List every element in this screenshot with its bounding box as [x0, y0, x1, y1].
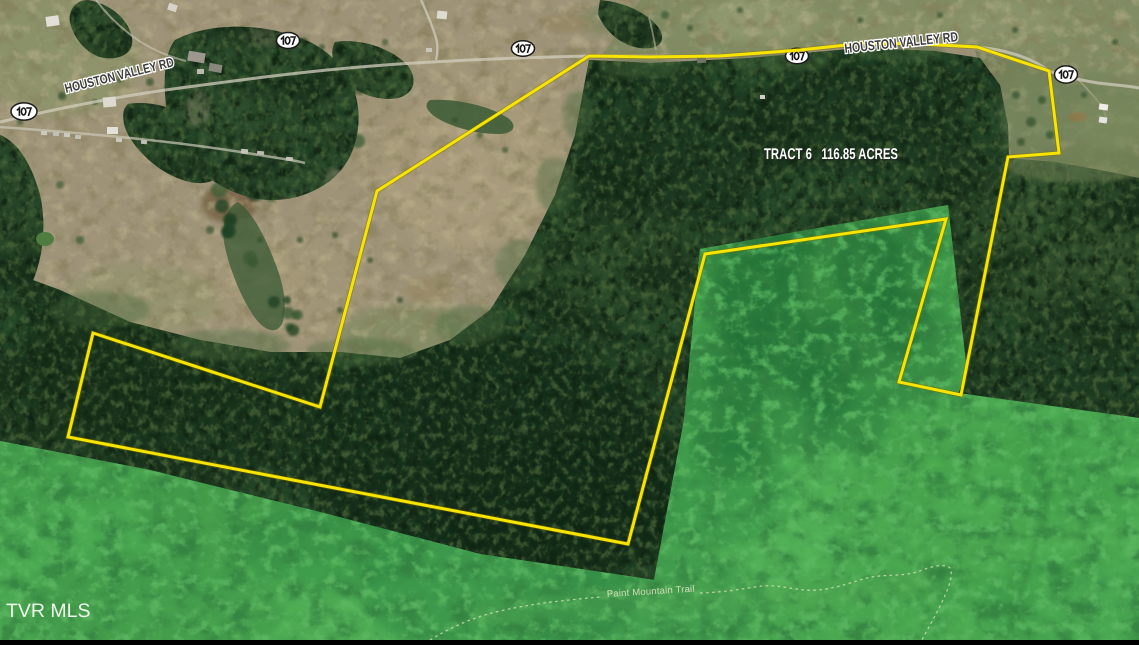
svg-text:TVR MLS: TVR MLS — [6, 600, 91, 622]
svg-text:TRACT 6 116.85 ACRES: TRACT 6 116.85 ACRES — [764, 146, 898, 163]
